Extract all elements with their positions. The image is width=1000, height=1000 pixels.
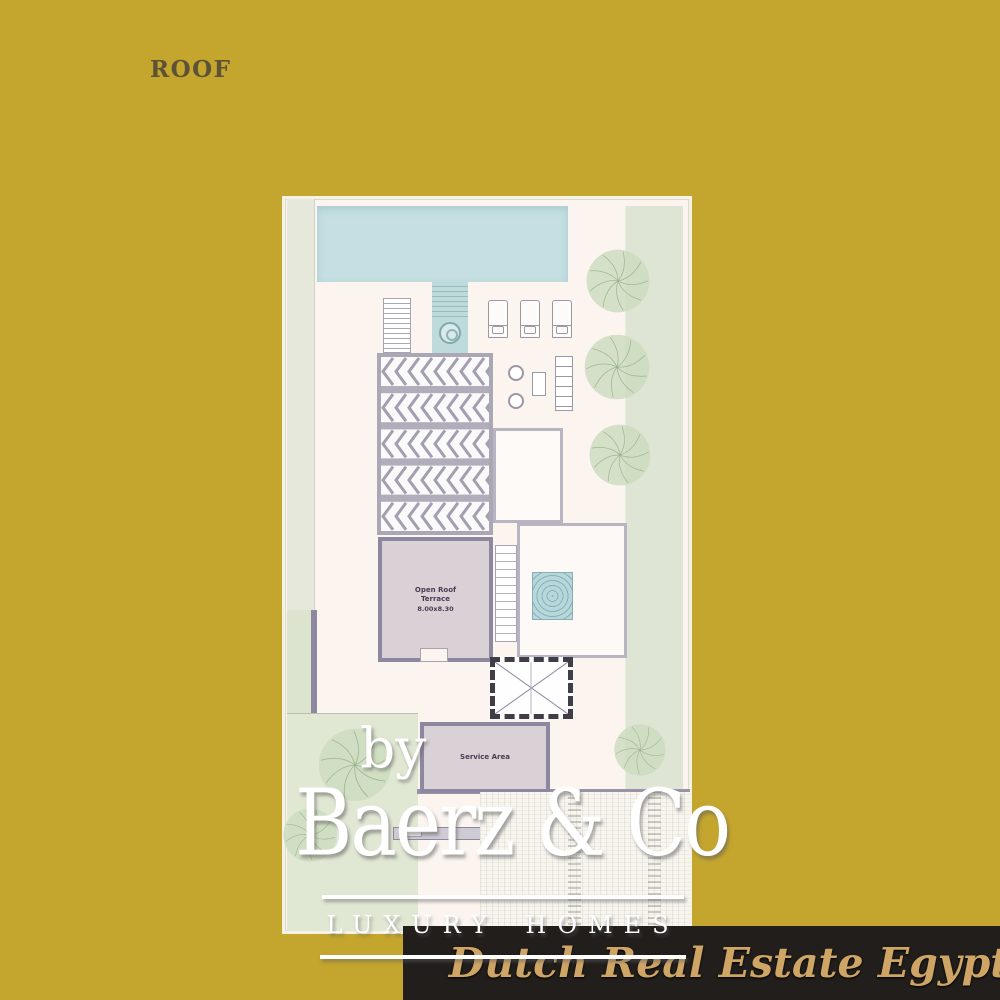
trellis-stair-enclosure	[490, 657, 573, 719]
pool	[317, 206, 568, 282]
tree-icon	[585, 248, 651, 314]
sun-lounger-icon	[488, 300, 508, 338]
skylight-icon	[532, 572, 573, 620]
agency-banner-text: Dutch Real Estate Egypt	[394, 939, 1000, 987]
watermark-divider-top	[322, 895, 684, 899]
tree-icon	[613, 723, 667, 777]
table-icon	[532, 372, 546, 396]
chair-icon	[508, 365, 524, 381]
pergola-chevron-pattern	[381, 357, 489, 531]
tree-icon	[583, 333, 651, 401]
sun-lounger-icon	[520, 300, 540, 338]
sun-lounger-icon	[552, 300, 572, 338]
staircase-interior	[495, 545, 517, 642]
page-background: ROOF Open Roof Terrace 8.00x8.30	[0, 0, 1000, 1000]
tree-icon	[588, 423, 652, 487]
service-area-label: Service Area	[460, 753, 510, 762]
terrace-door-notch	[420, 648, 448, 662]
chair-icon	[508, 393, 524, 409]
garden-strip-left	[287, 199, 315, 610]
bar-shelf-icon	[555, 356, 573, 411]
open-roof-terrace-label: Open Roof Terrace 8.00x8.30	[415, 586, 456, 614]
floor-title: ROOF	[150, 56, 232, 83]
fountain-icon	[439, 322, 461, 344]
trellis-cross-lines	[495, 662, 568, 714]
roof-outline-upper	[493, 428, 563, 523]
watermark-tagline: LUXURY HOMES	[320, 911, 686, 939]
staircase-left	[383, 298, 411, 353]
watermark-divider-bottom	[320, 955, 686, 959]
open-roof-terrace-room: Open Roof Terrace 8.00x8.30	[378, 537, 493, 662]
pergola-roof	[377, 353, 493, 535]
watermark-brand: Baerz & Co	[295, 772, 691, 878]
pool-steps	[432, 282, 468, 320]
